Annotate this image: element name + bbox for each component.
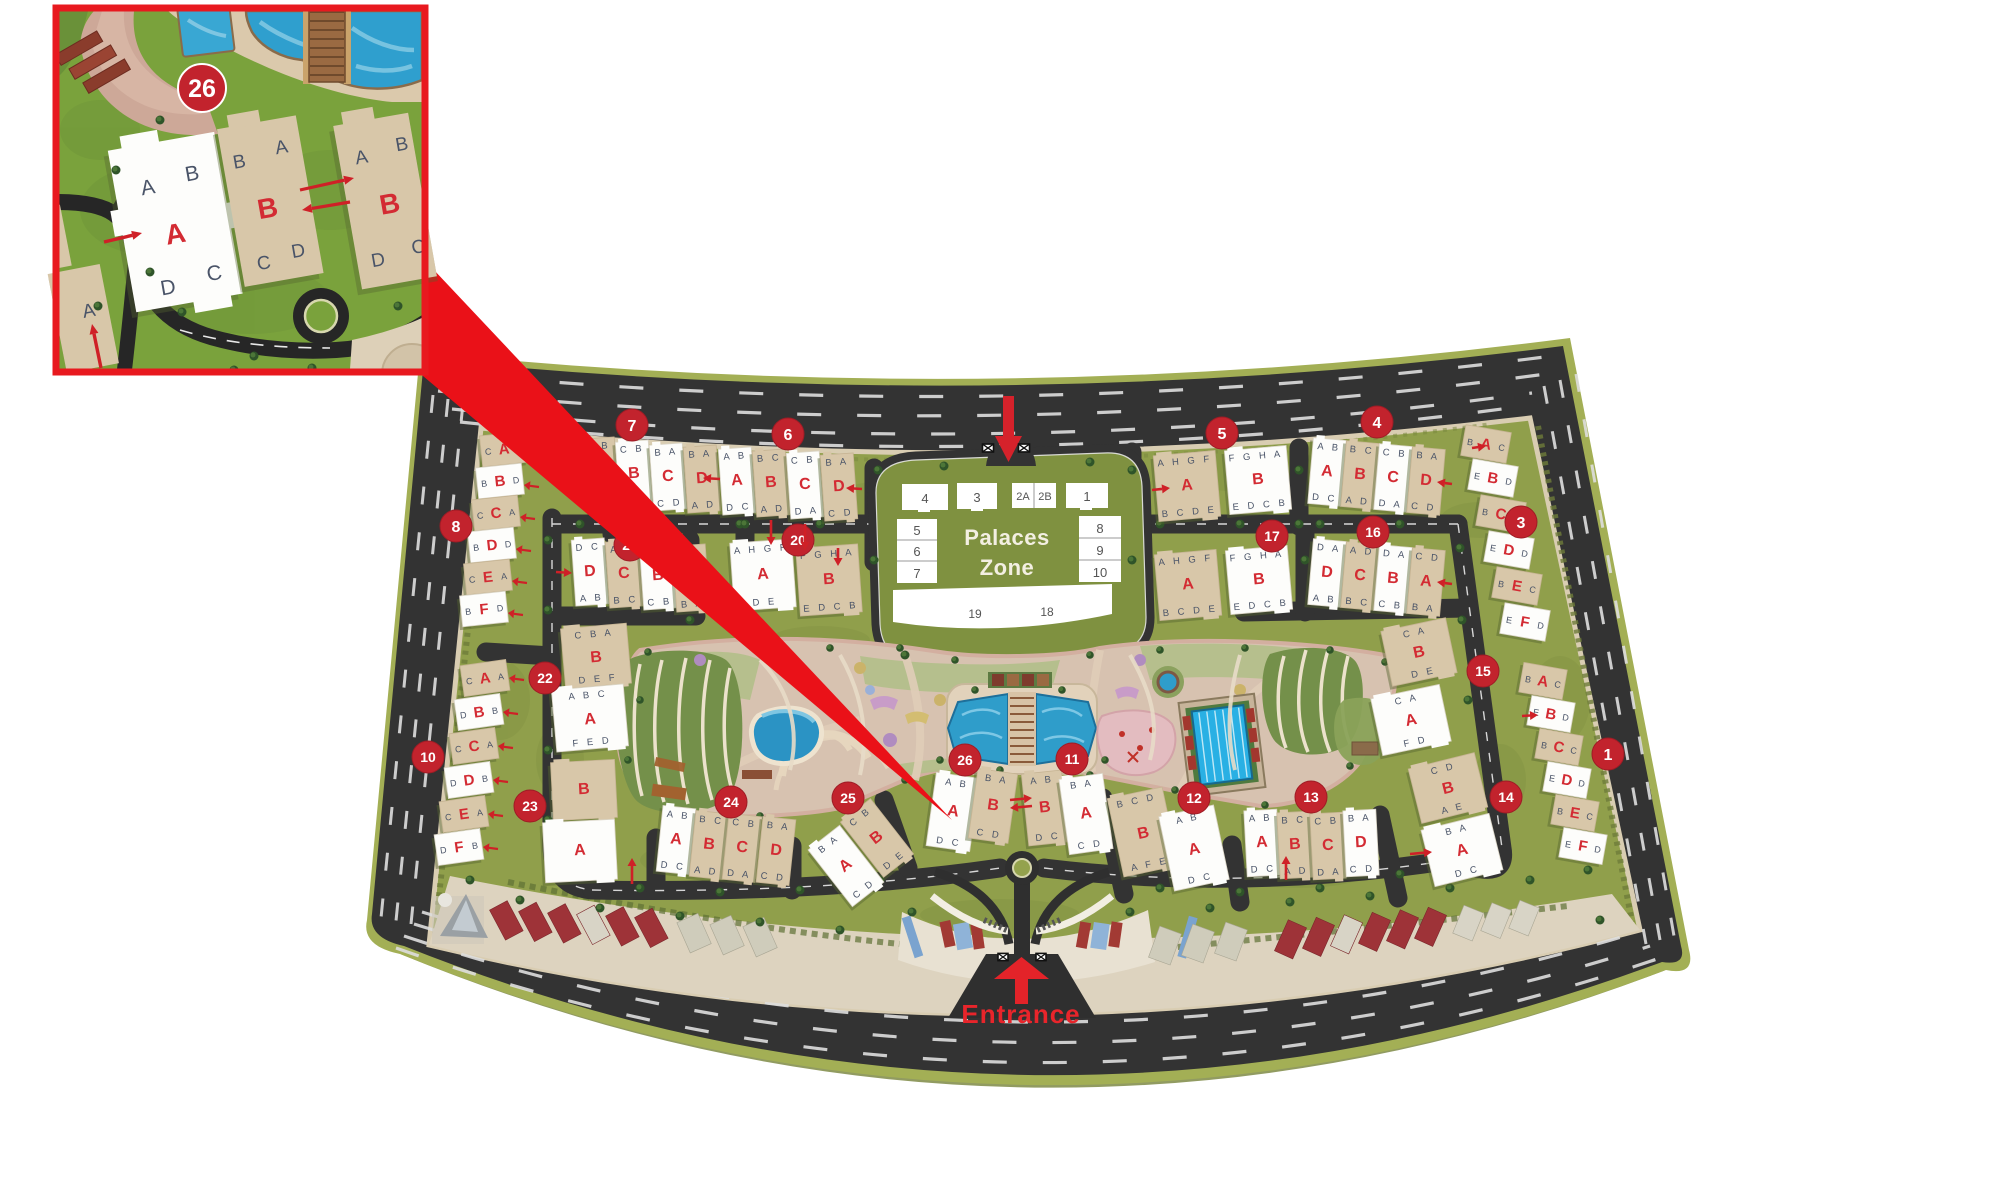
svg-text:A B: A B (580, 592, 605, 605)
svg-text:B A: B A (654, 446, 679, 459)
svg-text:D A: D A (1317, 866, 1342, 878)
svg-text:B A: B A (1411, 602, 1436, 615)
svg-text:B: B (473, 542, 480, 553)
svg-text:A B: A B (1312, 593, 1337, 606)
svg-text:7: 7 (913, 566, 920, 581)
svg-text:B A: B A (825, 456, 850, 469)
svg-text:A: A (1420, 573, 1433, 591)
svg-text:3: 3 (973, 490, 980, 505)
svg-text:A: A (757, 566, 770, 584)
svg-text:A D: A D (691, 499, 716, 512)
svg-text:B: B (1289, 836, 1301, 854)
svg-text:A: A (1321, 463, 1334, 481)
svg-text:B: B (765, 474, 778, 492)
svg-text:10: 10 (420, 749, 436, 765)
svg-text:D E: D E (752, 596, 778, 609)
svg-text:A B: A B (1317, 441, 1342, 454)
svg-text:C: C (1354, 567, 1367, 585)
svg-text:A: A (1181, 575, 1194, 593)
svg-text:3: 3 (1517, 515, 1526, 532)
svg-text:4: 4 (1373, 415, 1382, 432)
svg-text:B C: B C (757, 452, 783, 465)
svg-text:A: A (1256, 834, 1269, 852)
svg-text:A: A (584, 710, 597, 728)
svg-text:A: A (669, 830, 683, 848)
svg-text:B: B (1038, 798, 1051, 816)
svg-text:1: 1 (1604, 747, 1613, 764)
svg-text:C D: C D (1411, 501, 1437, 514)
svg-text:C D: C D (828, 507, 854, 520)
svg-text:1: 1 (1083, 489, 1090, 504)
svg-text:D A: D A (1383, 548, 1408, 561)
svg-text:C B: C B (1382, 447, 1408, 460)
svg-text:A: A (731, 472, 744, 490)
svg-text:D C: D C (575, 541, 601, 554)
svg-text:A: A (509, 507, 516, 518)
svg-text:C: C (1387, 469, 1400, 487)
svg-text:D A: D A (1378, 498, 1403, 511)
svg-text:F: F (479, 601, 490, 619)
svg-text:E: E (482, 569, 494, 587)
svg-text:26: 26 (188, 75, 216, 103)
svg-text:D: D (486, 536, 499, 554)
svg-text:24: 24 (723, 794, 739, 810)
svg-text:A B: A B (723, 450, 748, 463)
svg-text:18: 18 (1040, 605, 1054, 619)
svg-text:A D: A D (1345, 495, 1370, 508)
svg-text:D A: D A (1317, 542, 1342, 555)
svg-text:A: A (574, 842, 587, 860)
svg-text:C: C (735, 838, 749, 856)
svg-text:C: C (662, 468, 675, 486)
svg-text:14: 14 (1498, 789, 1514, 805)
svg-text:C B: C B (1378, 599, 1404, 612)
svg-text:Entrance: Entrance (961, 999, 1080, 1029)
svg-text:C: C (799, 476, 812, 494)
svg-text:12: 12 (1186, 790, 1202, 806)
svg-text:B C: B C (1349, 444, 1375, 457)
svg-text:B C: B C (1281, 814, 1306, 826)
svg-text:19: 19 (968, 607, 982, 621)
svg-text:B: B (1387, 570, 1400, 588)
svg-text:15: 15 (1475, 663, 1491, 679)
svg-text:D: D (833, 478, 846, 496)
svg-text:C B: C B (647, 596, 673, 609)
svg-text:A D: A D (760, 503, 785, 516)
svg-text:C B: C B (1314, 815, 1339, 827)
svg-text:C: C (490, 504, 503, 522)
svg-text:6: 6 (784, 427, 793, 444)
svg-text:B: B (494, 472, 507, 490)
svg-text:B: B (1251, 471, 1264, 489)
svg-text:C B: C B (620, 443, 646, 456)
svg-text:B: B (1252, 571, 1265, 589)
svg-text:A: A (501, 571, 508, 582)
svg-text:D A: D A (794, 505, 819, 518)
svg-text:5: 5 (913, 523, 920, 538)
svg-text:17: 17 (1264, 528, 1280, 544)
svg-text:D: D (1420, 472, 1433, 490)
svg-text:2A: 2A (1016, 491, 1030, 503)
svg-text:9: 9 (1096, 543, 1103, 558)
svg-text:10: 10 (1093, 565, 1107, 580)
svg-text:A: A (1180, 476, 1193, 494)
svg-text:C D: C D (1349, 863, 1375, 875)
svg-text:C B: C B (791, 454, 817, 467)
svg-text:D: D (1321, 564, 1334, 582)
svg-text:D: D (1355, 834, 1367, 852)
svg-text:13: 13 (1303, 789, 1319, 805)
svg-text:23: 23 (522, 798, 538, 814)
svg-text:16: 16 (1365, 524, 1381, 540)
svg-text:22: 22 (537, 670, 553, 686)
svg-text:D C: D C (1250, 863, 1276, 875)
svg-text:C D: C D (1415, 551, 1441, 564)
svg-text:B: B (986, 796, 1000, 814)
svg-text:4: 4 (921, 491, 928, 506)
svg-text:B: B (481, 478, 488, 489)
svg-text:C: C (618, 565, 631, 583)
svg-text:Palaces: Palaces (964, 525, 1049, 550)
svg-text:8: 8 (452, 519, 461, 536)
svg-text:B: B (465, 606, 472, 617)
svg-text:A D: A D (1284, 865, 1309, 877)
svg-text:2B: 2B (1038, 491, 1051, 503)
svg-text:C D: C D (657, 497, 683, 510)
svg-text:B A: B A (688, 448, 713, 461)
svg-text:25: 25 (840, 790, 856, 806)
svg-text:5: 5 (1218, 426, 1227, 443)
svg-text:Zone: Zone (980, 555, 1035, 580)
svg-text:B: B (823, 571, 836, 589)
svg-text:6: 6 (913, 544, 920, 559)
svg-text:B C: B C (613, 594, 639, 607)
svg-text:26: 26 (957, 752, 973, 768)
svg-text:11: 11 (1065, 751, 1080, 767)
svg-text:7: 7 (628, 418, 637, 435)
svg-text:B: B (578, 781, 590, 799)
svg-text:B: B (590, 649, 603, 667)
svg-text:A B: A B (1249, 812, 1273, 824)
svg-text:D C: D C (726, 501, 752, 514)
svg-text:B A: B A (1416, 450, 1441, 463)
svg-text:B: B (702, 835, 715, 853)
svg-text:D: D (769, 841, 782, 859)
svg-text:C: C (1322, 837, 1335, 855)
svg-text:B A: B A (1348, 812, 1372, 824)
svg-text:B C: B C (1345, 596, 1371, 609)
svg-text:D: D (584, 563, 597, 581)
svg-text:8: 8 (1096, 521, 1103, 536)
svg-text:D C: D C (1312, 492, 1338, 505)
svg-text:B: B (1354, 466, 1367, 484)
